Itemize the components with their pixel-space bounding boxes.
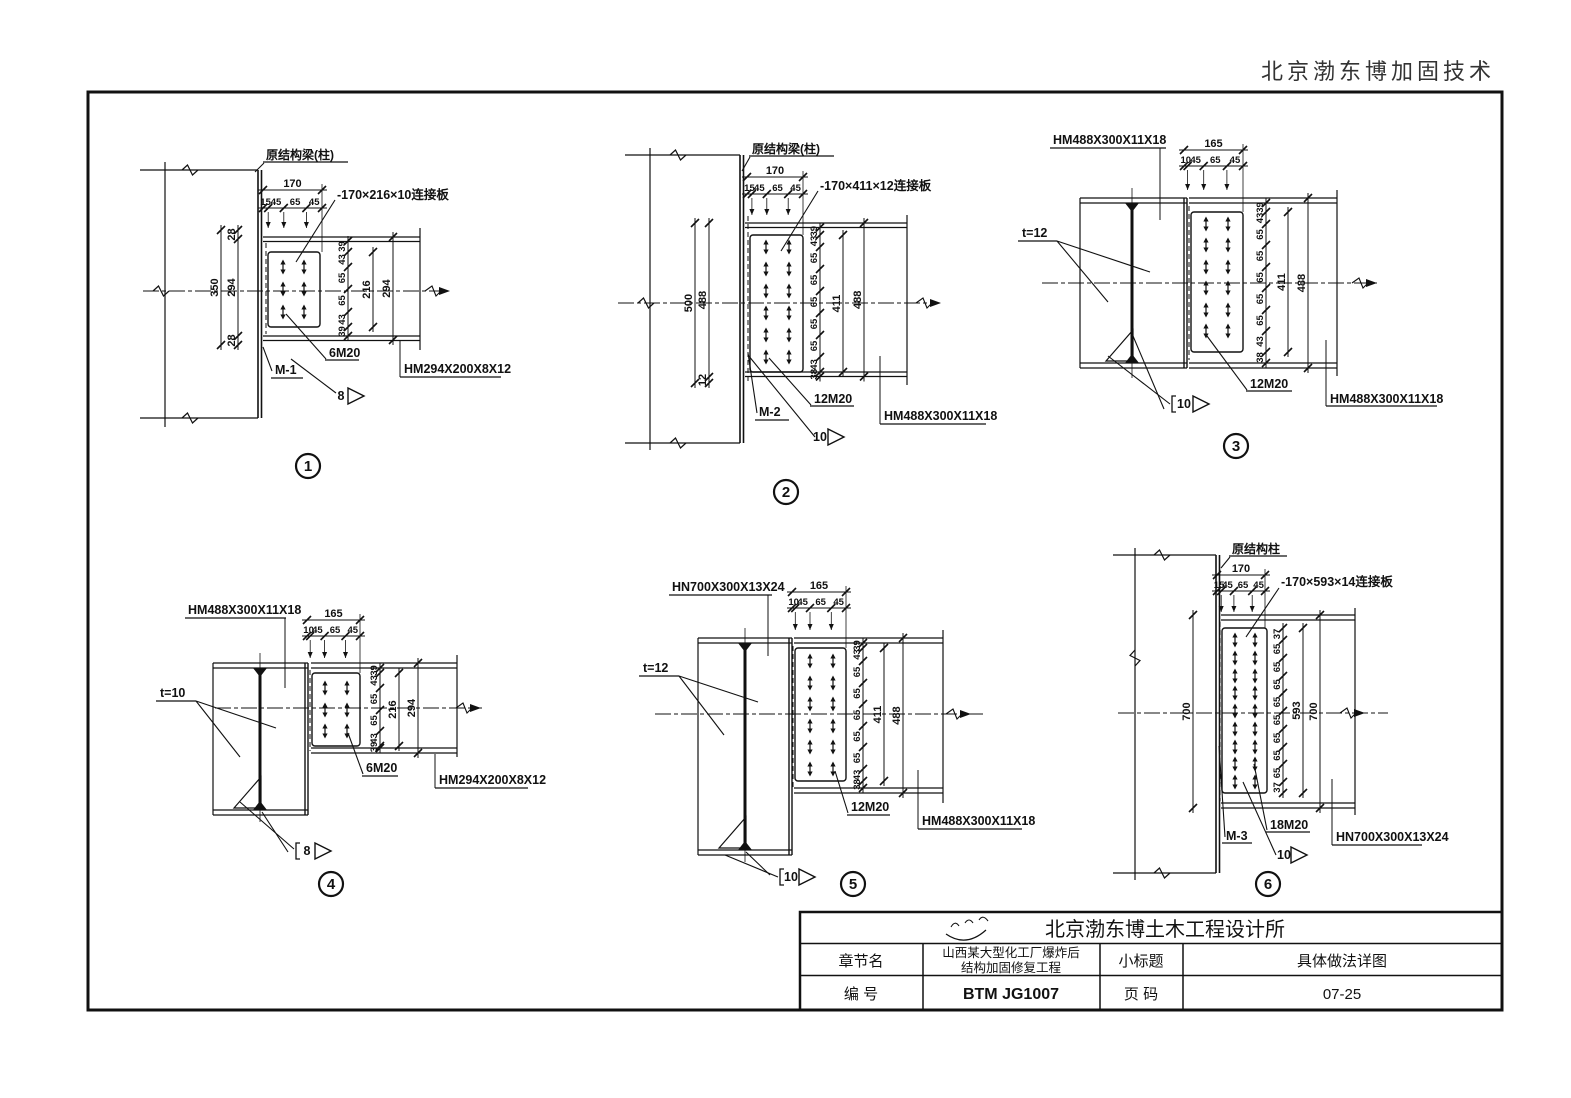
mark-label: M-2	[759, 405, 781, 419]
drawing-page: 北京渤东博加固技术1701545654535028294283943656543…	[0, 0, 1571, 1098]
dimension-label: 43	[1255, 213, 1266, 224]
detail-number: 6	[1264, 876, 1272, 893]
dimension-label: 488	[697, 291, 709, 309]
sheet-brand-title: 北京渤东博加固技术	[1261, 59, 1495, 84]
beam-section-label: HM488X300X11X18	[922, 814, 1035, 828]
dimension-label: 28	[226, 334, 238, 346]
plate-label: -170×216×10连接板	[337, 187, 449, 202]
paper-background	[0, 0, 1571, 1098]
support-member-label: 原结构梁(柱)	[266, 147, 334, 162]
dimension-label: 65	[1210, 155, 1221, 166]
dimension-label: 65	[1255, 315, 1266, 326]
dimension-label: 700	[1181, 702, 1193, 720]
member-section-label: HM488X300X11X18	[1053, 133, 1166, 147]
design-office-name: 北京渤东博土木工程设计所	[1045, 918, 1285, 941]
dimension-label: 65	[1255, 229, 1266, 240]
dimension-label: 65	[852, 752, 863, 763]
weld-size-label: 10	[1277, 848, 1291, 862]
weld-size-label: 8	[304, 844, 311, 858]
dimension-label: 65	[852, 666, 863, 677]
dimension-label: 65	[809, 318, 820, 329]
dimension-label: 65	[290, 197, 301, 208]
dimension-label: 411	[831, 295, 843, 313]
dimension-label: 65	[1255, 272, 1266, 283]
dimension-label: 43	[337, 254, 348, 265]
member-section-label: HM488X300X11X18	[188, 603, 301, 617]
beam-section-label: HM294X200X8X12	[404, 362, 511, 376]
detail-number: 1	[304, 458, 312, 475]
dimension-label: 43	[852, 770, 863, 781]
dimension-label: 165	[1204, 138, 1222, 150]
dimension-label: 45	[833, 597, 844, 608]
dimension-label: 65	[1272, 714, 1283, 725]
bolt-count-label: 6M20	[366, 761, 397, 775]
dimension-label: 593	[1291, 701, 1303, 719]
dimension-label: 65	[1272, 679, 1283, 690]
dimension-label: 65	[852, 709, 863, 720]
dimension-label: 170	[283, 178, 301, 190]
dimension-label: 488	[852, 291, 864, 309]
detail-number: 3	[1232, 438, 1240, 455]
dimension-label: 65	[1272, 643, 1283, 654]
dimension-label: 170	[766, 165, 784, 177]
dimension-label: 65	[369, 715, 380, 726]
bolt-count-label: 12M20	[814, 392, 852, 406]
dimension-label: 65	[809, 252, 820, 263]
dimension-label: 45	[1230, 155, 1241, 166]
beam-section-label: HM294X200X8X12	[439, 773, 546, 787]
dimension-label: 65	[852, 731, 863, 742]
support-member-label: 原结构柱	[1232, 541, 1280, 556]
drawing-code-value: BTM JG1007	[963, 986, 1059, 1003]
dimension-label: 45	[790, 183, 801, 194]
dimension-label: 39	[852, 640, 863, 651]
dimension-label: 39	[369, 665, 380, 676]
dimension-label: 45	[1253, 580, 1264, 591]
dimension-label: 294	[406, 698, 418, 717]
dimension-label: 165	[324, 608, 342, 620]
dimension-label: 43	[809, 359, 820, 370]
dimension-label: 488	[1296, 274, 1308, 292]
dimension-label: 170	[1232, 563, 1250, 575]
dimension-label: 700	[1308, 702, 1320, 720]
dimension-label: 38	[1255, 352, 1266, 363]
thickness-label: t=12	[1022, 226, 1047, 240]
dimension-label: 39	[337, 241, 348, 252]
dimension-label: 350	[209, 278, 221, 296]
plate-label: -170×593×14连接板	[1281, 574, 1393, 589]
dimension-label: 39	[1255, 202, 1266, 213]
dimension-label: 216	[361, 280, 373, 298]
dimension-label: 65	[1272, 696, 1283, 707]
dimension-label: 65	[1272, 732, 1283, 743]
dimension-label: 39	[337, 326, 348, 337]
dimension-label: 43	[809, 236, 820, 247]
beam-section-label: HM488X300X11X18	[1330, 392, 1443, 406]
dimension-label: 45	[347, 625, 358, 636]
dimension-label: 43	[337, 314, 348, 325]
beam-section-label: HM488X300X11X18	[884, 409, 997, 423]
bolt-count-label: 12M20	[851, 800, 889, 814]
dimension-label: 39	[369, 742, 380, 753]
dimension-label: 294	[226, 277, 238, 296]
dimension-label: 65	[1255, 293, 1266, 304]
dimension-label: 65	[369, 693, 380, 704]
dimension-label: 12	[697, 374, 709, 386]
dimension-label: 39	[809, 226, 820, 237]
dimension-label: 65	[809, 340, 820, 351]
dimension-label: 216	[387, 700, 399, 718]
mark-label: M-1	[275, 363, 297, 377]
dimension-label: 65	[337, 272, 348, 283]
subtitle-label: 小标题	[1118, 953, 1163, 970]
detail-number: 4	[327, 876, 336, 893]
weld-size-label: 10	[1177, 397, 1191, 411]
drawing-code-label: 编 号	[844, 986, 878, 1003]
page-number-label: 页 码	[1124, 986, 1158, 1003]
dimension-label: 65	[330, 625, 341, 636]
dimension-label: 45	[1222, 580, 1233, 591]
drawing-sheet: 北京渤东博加固技术1701545654535028294283943656543…	[0, 0, 1571, 1098]
mark-label: M-3	[1226, 829, 1248, 843]
detail-number: 5	[849, 876, 857, 893]
weld-size-label: 10	[813, 430, 827, 444]
dimension-label: 38	[852, 779, 863, 790]
dimension-label: 45	[309, 197, 320, 208]
dimension-label: 65	[852, 688, 863, 699]
dimension-label: 65	[337, 295, 348, 306]
dimension-label: 45	[312, 625, 323, 636]
thickness-label: t=10	[160, 686, 185, 700]
member-section-label: HN700X300X13X24	[672, 580, 785, 594]
dimension-label: 65	[1272, 661, 1283, 672]
dimension-label: 45	[797, 597, 808, 608]
dimension-label: 294	[381, 278, 393, 297]
bolt-count-label: 6M20	[329, 346, 360, 360]
dimension-label: 65	[772, 183, 783, 194]
dimension-label: 37	[1272, 782, 1283, 793]
dimension-label: 411	[1276, 273, 1288, 291]
dimension-label: 65	[815, 597, 826, 608]
dimension-label: 45	[271, 197, 282, 208]
weld-size-label: 10	[784, 870, 798, 884]
subtitle-value: 具体做法详图	[1297, 953, 1387, 970]
dimension-label: 37	[1272, 629, 1283, 640]
beam-section-label: HN700X300X13X24	[1336, 830, 1449, 844]
dimension-label: 65	[1272, 767, 1283, 778]
dimension-label: 65	[809, 274, 820, 285]
project-name-line2: 结构加固修复工程	[961, 960, 1062, 975]
bolt-count-label: 18M20	[1270, 818, 1308, 832]
dimension-label: 165	[810, 580, 828, 592]
bolt-count-label: 12M20	[1250, 377, 1288, 391]
chapter-label: 章节名	[838, 952, 883, 970]
dimension-label: 43	[1255, 336, 1266, 347]
dimension-label: 500	[683, 294, 695, 312]
support-member-label: 原结构梁(柱)	[752, 141, 820, 156]
dimension-label: 65	[1272, 750, 1283, 761]
detail-number: 2	[782, 484, 790, 501]
dimension-label: 65	[1255, 250, 1266, 261]
dimension-label: 65	[809, 296, 820, 307]
dimension-label: 488	[891, 706, 903, 724]
dimension-label: 28	[226, 228, 238, 240]
thickness-label: t=12	[643, 661, 668, 675]
dimension-label: 38	[809, 369, 820, 380]
dimension-label: 43	[852, 649, 863, 660]
plate-label: -170×411×12连接板	[820, 178, 932, 193]
page-number-value: 07-25	[1323, 986, 1361, 1003]
dimension-label: 43	[369, 675, 380, 686]
dimension-label: 45	[1190, 155, 1201, 166]
dimension-label: 411	[872, 706, 884, 724]
dimension-label: 65	[1238, 580, 1249, 591]
project-name-line1: 山西某大型化工厂爆炸后	[942, 946, 1080, 960]
dimension-label: 45	[754, 183, 765, 194]
weld-size-label: 8	[338, 389, 345, 403]
